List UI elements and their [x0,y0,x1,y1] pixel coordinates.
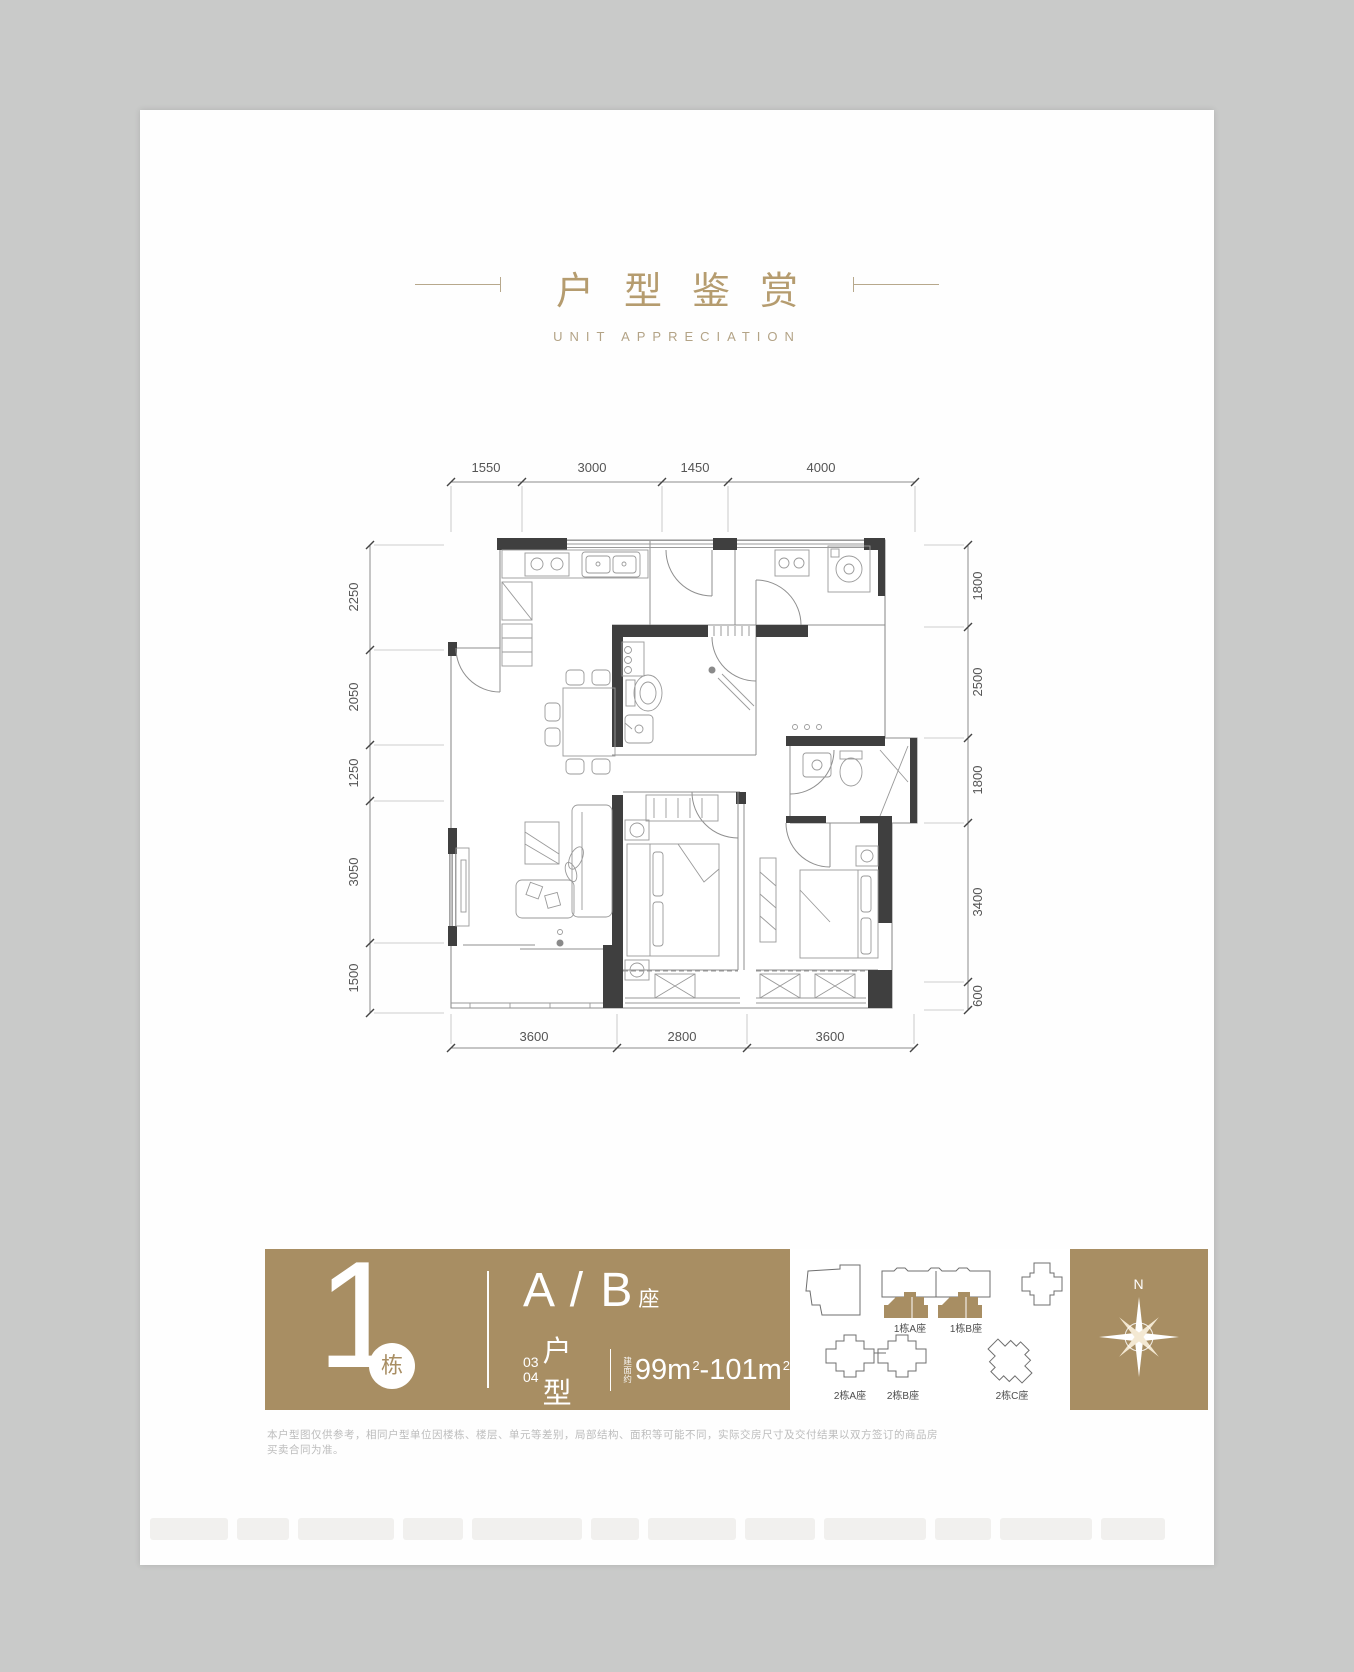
site-building-outline [1022,1263,1062,1305]
block-label: A / B [523,1264,634,1317]
dim-label: 3600 [816,1029,845,1044]
title-block: 户型鉴赏 UNIT APPRECIATION [140,260,1214,344]
dim-label: 2500 [970,668,985,697]
unit-info-panel: 1 栋 A / B座 03 04 户型 建 面 约 99 [265,1249,790,1410]
title-rule-right-tick [853,277,854,292]
block-suffix: 座 [638,1288,661,1311]
building2b-outline [878,1335,926,1377]
dim-label: 3400 [970,888,985,917]
site-label-2c: 2栋C座 [996,1389,1029,1402]
dim-label: 600 [970,985,985,1007]
page-subtitle: UNIT APPRECIATION [140,329,1214,344]
title-rule-left [415,284,500,285]
band-separator [487,1271,489,1388]
poster-canvas: { "header": { "title": "户型鉴赏", "subtitle… [0,0,1354,1672]
dim-label: 3000 [578,460,607,475]
dim-label: 2050 [346,683,361,712]
watermark-strip [150,1518,1204,1540]
info-band: 1 栋 A / B座 03 04 户型 建 面 约 99 [265,1249,1208,1410]
dim-label: 1550 [472,460,501,475]
dim-label: 2800 [668,1029,697,1044]
site-map: 1栋A座 1栋B座 2栋A座 2栋B座 2栋C座 [790,1249,1070,1410]
floor-plan: 1550 3000 1450 4000 2250 2050 1250 3050 … [320,420,1020,1080]
dim-label: 1450 [681,460,710,475]
area-prefix-char: 约 [623,1375,632,1384]
dim-label: 1800 [970,572,985,601]
dim-label: 2250 [346,583,361,612]
site-label-2a: 2栋A座 [834,1389,866,1402]
site-label-1b: 1栋B座 [950,1322,982,1335]
unit-number-2: 04 [523,1370,539,1385]
dim-label: 3050 [346,858,361,887]
area-divider [610,1349,612,1391]
building2a-outline [826,1335,874,1377]
compass-north-label: N [1133,1276,1144,1292]
dim-label: 1500 [346,964,361,993]
site-label-1a: 1栋A座 [894,1322,926,1335]
title-rule-left-tick [500,277,501,292]
area-range: 99m2-101m2 [635,1354,790,1387]
unit-type-label: 户型 [543,1328,596,1412]
unit-outline [451,540,917,1008]
building2c-outline [978,1329,1042,1393]
dim-label: 1800 [970,766,985,795]
site-label-2b: 2栋B座 [887,1389,919,1402]
site-map-panel: 1栋A座 1栋B座 2栋A座 2栋B座 2栋C座 [790,1249,1070,1410]
dim-label: 4000 [807,460,836,475]
poster-page: 户型鉴赏 UNIT APPRECIATION [140,110,1214,1565]
dim-label: 3600 [520,1029,549,1044]
site-building-outline [806,1265,860,1315]
compass-panel: N [1070,1249,1208,1410]
building-suffix-badge: 栋 [369,1343,415,1389]
highlighted-towers [884,1292,982,1318]
dim-label: 1250 [346,759,361,788]
page-title: 户型鉴赏 [556,260,828,315]
compass-icon: N [1070,1249,1208,1410]
title-rule-right [854,284,939,285]
disclaimer-text: 本户型图仅供参考，相同户型单位因楼栋、楼层、单元等差别，局部结构、面积等可能不同… [267,1427,947,1457]
unit-number-1: 03 [523,1355,539,1370]
